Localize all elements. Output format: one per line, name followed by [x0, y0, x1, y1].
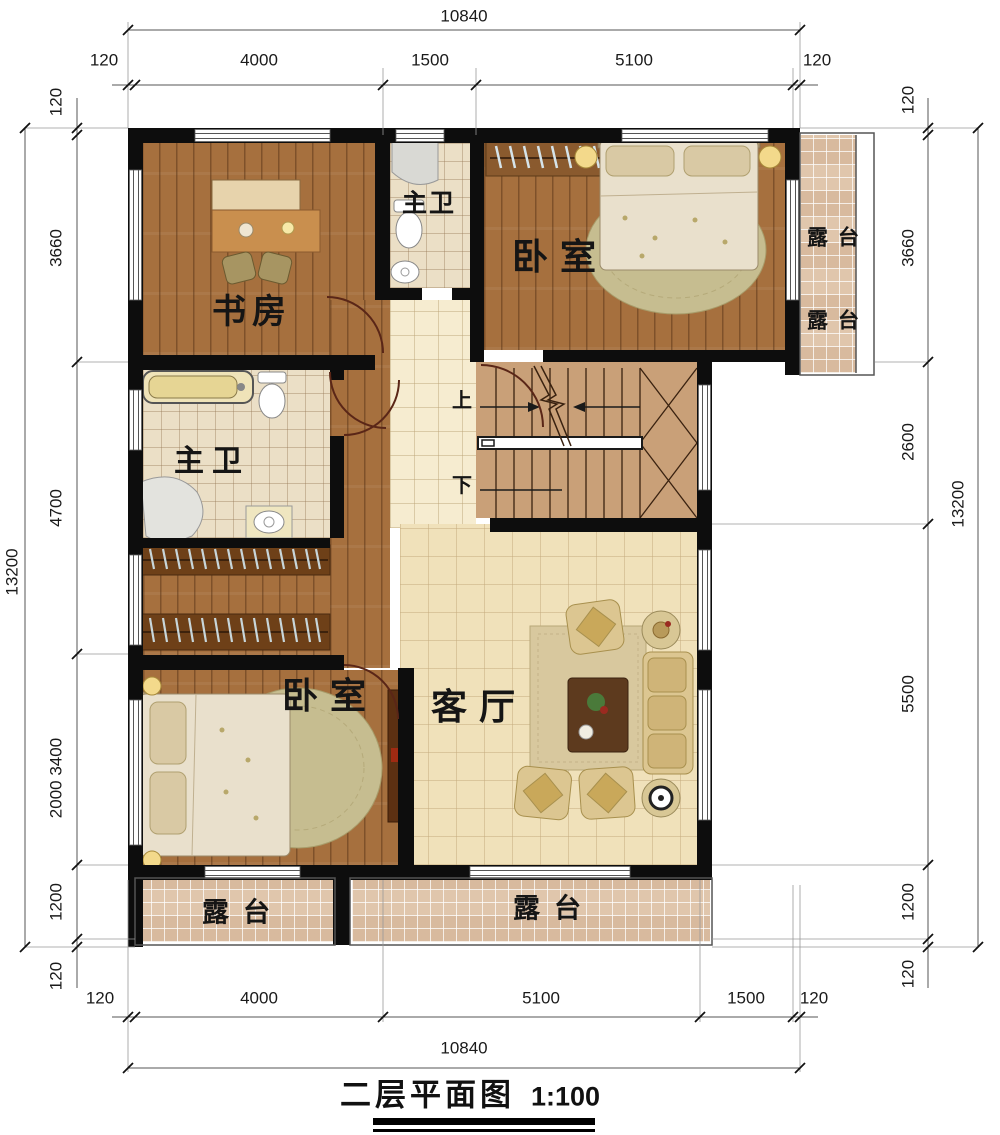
- dim-right-seg-2: 2600: [900, 423, 917, 461]
- dim-right-overall: 13200: [950, 480, 967, 527]
- dim-right-seg-3: 5500: [900, 675, 917, 713]
- dim-top-overall: 10840: [440, 8, 487, 25]
- dim-left-seg-0: 120: [48, 88, 65, 116]
- terrace-right-label-1: 露台: [807, 228, 869, 249]
- dim-bottom-seg-4: 120: [800, 990, 828, 1007]
- dim-top-seg-2: 1500: [411, 52, 449, 69]
- stairs-down-label: 下: [452, 476, 472, 496]
- dim-right-seg-4: 1200: [900, 883, 917, 921]
- page-title: 二层平面图: [340, 1070, 515, 1115]
- room-label-bedroom-bottom: 卧室: [282, 678, 378, 714]
- title-scale: 1:100: [531, 1082, 600, 1113]
- dim-bottom-seg-2: 5100: [522, 990, 560, 1007]
- room-label-study: 书房: [212, 295, 292, 329]
- dim-top-seg-0: 120: [90, 52, 118, 69]
- stairs-up-label: 上: [452, 391, 472, 411]
- dim-left-seg-5: 120: [48, 962, 65, 990]
- title-underline-thick: [373, 1118, 595, 1125]
- dim-left-seg-1: 3660: [48, 229, 65, 267]
- dim-left-seg-2: 4700: [48, 489, 65, 527]
- dim-top-seg-3: 5100: [615, 52, 653, 69]
- room-label-bath-top: 主卫: [402, 192, 456, 217]
- terrace-right-floor: [800, 135, 856, 373]
- drawing-title: 二层平面图 1:100: [340, 1070, 600, 1115]
- dim-right-seg-1: 3660: [900, 229, 917, 267]
- stairs-floor: [476, 362, 697, 518]
- dim-bottom-overall: 10840: [440, 1040, 487, 1057]
- corridor-floor: [330, 300, 390, 668]
- dim-top-seg-4: 120: [803, 52, 831, 69]
- room-label-bath-left: 主卫: [174, 447, 250, 477]
- terrace-right-label-2: 露台: [807, 311, 869, 332]
- terrace-bottom-left-label: 露台: [202, 900, 284, 927]
- dim-top-seg-1: 4000: [240, 52, 278, 69]
- dim-left-seg-4: 1200: [48, 883, 65, 921]
- dim-right-seg-0: 120: [900, 86, 917, 114]
- dim-left-overall: 13200: [4, 548, 21, 595]
- floor-plan: 书房 主卫 卧室 露台 露台 主卫 卧室 客厅 露台 露台 上 下 10840 …: [0, 0, 1000, 1135]
- room-label-living: 客厅: [431, 689, 527, 725]
- dim-bottom-seg-0: 120: [86, 990, 114, 1007]
- title-underline-thin: [373, 1129, 595, 1132]
- dim-bottom-seg-3: 1500: [727, 990, 765, 1007]
- dim-bottom-seg-1: 4000: [240, 990, 278, 1007]
- dim-right-seg-5: 120: [900, 960, 917, 988]
- room-label-bedroom-top: 卧室: [512, 239, 608, 275]
- closet-floor: [143, 548, 330, 655]
- dim-left-seg-3: 2000 3400: [48, 738, 65, 818]
- terrace-bottom-center-label: 露台: [513, 896, 595, 923]
